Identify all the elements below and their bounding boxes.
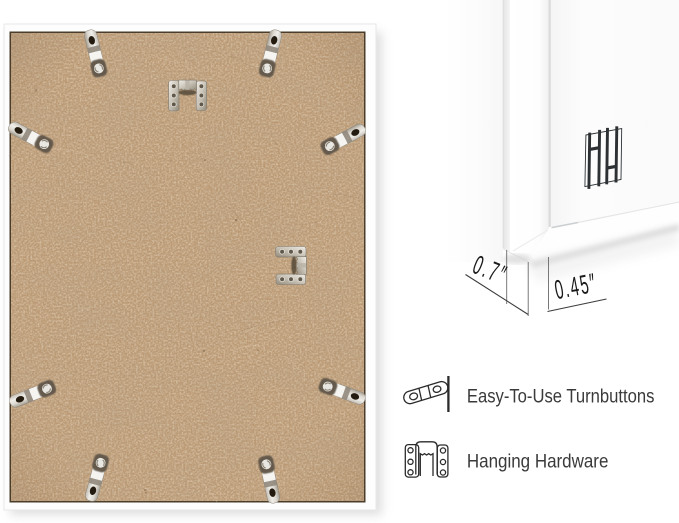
svg-text:Hanging Hardware: Hanging Hardware [467,452,609,473]
svg-text:Easy-To-Use Turnbuttons: Easy-To-Use Turnbuttons [467,387,655,408]
